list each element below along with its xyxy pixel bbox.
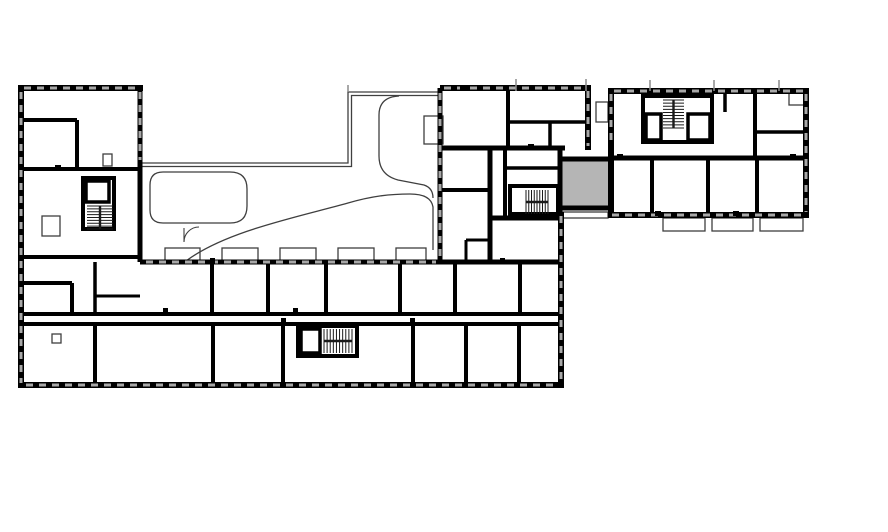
door-jamb <box>410 318 415 325</box>
door-jamb <box>500 258 505 264</box>
elevator-shaft <box>86 181 109 202</box>
door-jamb <box>617 154 623 159</box>
elevator-shaft <box>646 114 661 140</box>
selected-unit-highlight[interactable] <box>562 161 609 207</box>
door-jamb <box>281 318 286 325</box>
door-jamb <box>163 308 168 315</box>
door-jamb <box>733 211 739 216</box>
door-jamb <box>528 144 534 149</box>
plan-background <box>0 0 888 532</box>
door-jamb <box>460 86 466 91</box>
floor-plan-svg <box>0 0 888 532</box>
door-jamb <box>293 308 298 315</box>
floor-plan <box>0 0 888 532</box>
elevator-shaft <box>301 329 320 353</box>
door-jamb <box>655 211 661 216</box>
floor-plan-page <box>0 0 888 532</box>
door-jamb <box>790 154 796 159</box>
elevator-shaft <box>688 114 710 140</box>
door-jamb <box>210 258 215 264</box>
door-jamb <box>55 165 61 170</box>
